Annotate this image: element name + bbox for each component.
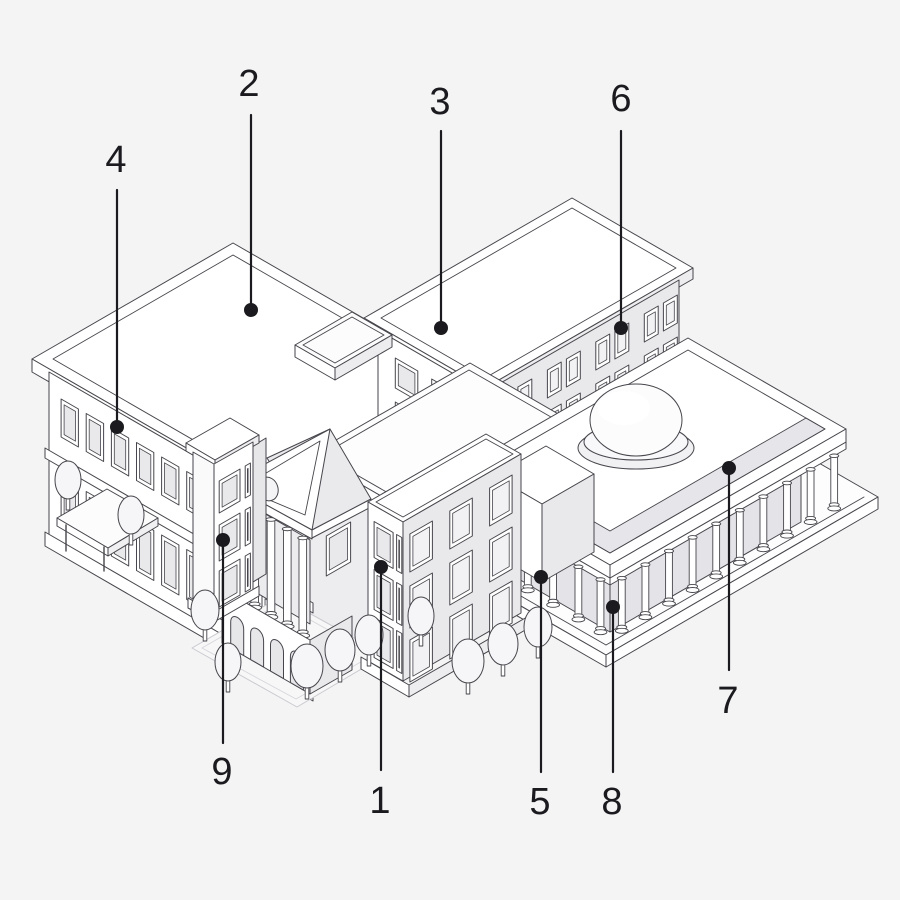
- callout-label-2: 2: [238, 65, 259, 103]
- callout-dot-2: [244, 303, 258, 317]
- callout-label-1: 1: [369, 782, 390, 820]
- callout-dot-9: [216, 533, 230, 547]
- callout-label-5: 5: [529, 783, 550, 821]
- isometric-buildings-drawing: [0, 0, 900, 900]
- callout-label-8: 8: [601, 783, 622, 821]
- callout-dot-7: [722, 461, 736, 475]
- callout-dot-3: [434, 321, 448, 335]
- callout-label-9: 9: [211, 753, 232, 791]
- callout-label-3: 3: [429, 83, 450, 121]
- tower-left: [186, 418, 266, 622]
- callout-dot-1: [374, 560, 388, 574]
- callout-label-7: 7: [717, 682, 738, 720]
- callout-dot-5: [534, 570, 548, 584]
- callout-dot-6: [614, 321, 628, 335]
- callout-dot-8: [606, 600, 620, 614]
- campus-illustration: 1 2 3 4 5 6 7 8 9: [0, 0, 900, 900]
- callout-dot-4: [110, 420, 124, 434]
- callout-label-6: 6: [610, 80, 631, 118]
- callout-label-4: 4: [105, 141, 126, 179]
